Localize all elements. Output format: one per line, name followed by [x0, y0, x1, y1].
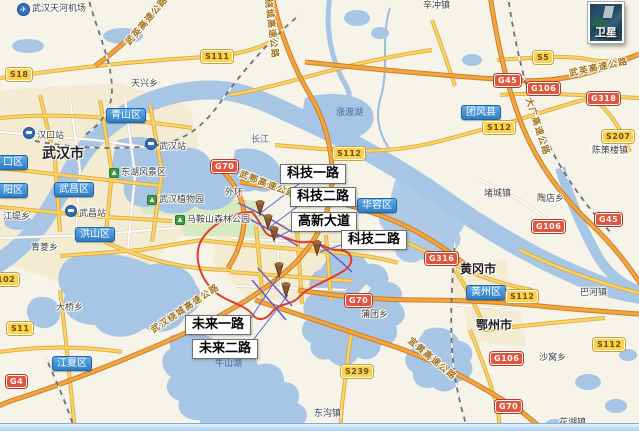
road-shield-provincial: S239 — [341, 365, 373, 378]
park-icon: ▲ — [109, 168, 119, 178]
road-shield-national: G70 — [211, 160, 238, 173]
road-shield-national: G70 — [345, 294, 372, 307]
city-label: 武汉市 — [42, 147, 84, 162]
district-label: 青山区 — [106, 108, 146, 123]
expressway-name-label: 绕城高速公路 — [261, 0, 278, 59]
town-label: 陈策楼镇 — [592, 147, 628, 157]
district-label: 团风县 — [461, 105, 501, 120]
road-shield-provincial: S111 — [201, 50, 233, 63]
poi-label: ▲武汉植物园 — [147, 195, 204, 206]
road-callout-label: 科技一路 — [280, 164, 346, 184]
park-icon: ▲ — [147, 195, 157, 205]
satellite-toggle-button[interactable]: 卫星 — [588, 2, 624, 43]
district-label: 江夏区 — [52, 356, 92, 371]
district-label: 洪山区 — [75, 227, 115, 242]
satellite-toggle-label: 卫星 — [590, 24, 622, 40]
rail-station-label: 武汉站 — [145, 138, 186, 153]
water-label: 长江 — [251, 136, 269, 146]
town-label: 沙窝乡 — [539, 354, 566, 364]
road-shield-provincial: S207 — [602, 130, 634, 143]
town-label: 外环 — [225, 189, 243, 199]
poi-label: ▲东湖风景区 — [109, 168, 166, 179]
town-label: 巴河镇 — [580, 289, 607, 299]
town-label: 大桥乡 — [56, 304, 83, 314]
expressway-name-label: 武英高速公路 — [125, 0, 171, 48]
rail-station-label: 武昌站 — [65, 205, 106, 220]
town-label: 陶店乡 — [537, 195, 564, 205]
town-label: 蒲团乡 — [361, 311, 388, 321]
city-label: 黄冈市 — [460, 263, 496, 276]
water-label: 涨渡湖 — [336, 109, 363, 119]
road-shield-national: G106 — [532, 220, 565, 233]
poi-label: ▲马鞍山森林公园 — [175, 215, 250, 226]
airport-label: ✈武汉天河机场 — [17, 3, 86, 16]
rail-station-icon — [23, 127, 35, 139]
road-callout-label: 未来一路 — [185, 315, 251, 335]
road-shield-national: G45 — [494, 74, 521, 87]
road-shield-provincial: S11 — [7, 322, 33, 335]
district-label: 阳区 — [0, 183, 28, 198]
road-shield-provincial: S18 — [6, 68, 32, 81]
city-label: 鄂州市 — [476, 319, 512, 332]
road-shield-provincial: S112 — [506, 290, 538, 303]
district-label: 武昌区 — [54, 182, 94, 197]
district-label: 黄州区 — [466, 285, 506, 300]
map-labels: 武汉市黄冈市鄂州市青山区武昌区洪山区江夏区团风县华容区黄州区口区阳区天兴乡辛冲镇… — [0, 0, 639, 431]
town-label: 江堤乡 — [3, 213, 30, 223]
road-shield-provincial: S112 — [593, 338, 625, 351]
airport-icon: ✈ — [17, 3, 30, 16]
town-label: 天兴乡 — [131, 80, 158, 90]
expressway-name-label: 宜黄高速公路 — [405, 337, 457, 383]
road-shield-provincial: S112 — [333, 147, 365, 160]
road-shield-national: G106 — [527, 82, 560, 95]
bottom-scrollbar[interactable] — [0, 423, 639, 431]
town-label: 青菱乡 — [31, 244, 58, 254]
map-viewport: 武汉市黄冈市鄂州市青山区武昌区洪山区江夏区团风县华容区黄州区口区阳区天兴乡辛冲镇… — [0, 0, 639, 431]
road-shield-national: G70 — [495, 400, 522, 413]
road-shield-national: G106 — [490, 352, 523, 365]
town-label: 堵城镇 — [484, 190, 511, 200]
road-callout-label: 科技二路 — [290, 187, 356, 207]
road-shield-national: G45 — [595, 213, 622, 226]
district-label: 华容区 — [357, 198, 397, 213]
road-shield-provincial: 102 — [0, 273, 19, 286]
town-label: 东沟镇 — [314, 410, 341, 420]
district-label: 口区 — [0, 155, 28, 170]
town-label: 辛冲镇 — [423, 2, 450, 12]
park-icon: ▲ — [175, 215, 185, 225]
road-callout-label: 高新大道 — [291, 212, 357, 232]
road-callout-label: 未来二路 — [192, 339, 258, 359]
road-shield-national: G318 — [587, 92, 620, 105]
expressway-name-label: 武英高速公路 — [569, 58, 630, 80]
expressway-name-label: 大广高速公路 — [522, 97, 550, 157]
road-shield-provincial: S112 — [483, 121, 515, 134]
rail-station-icon — [145, 138, 157, 150]
road-shield-national: G4 — [6, 375, 27, 388]
rail-station-label: 汉口站 — [23, 127, 64, 142]
rail-station-icon — [65, 205, 77, 217]
road-shield-national: G316 — [425, 252, 458, 265]
water-label: 牛山湖 — [215, 360, 242, 370]
road-callout-label: 科技二路 — [341, 230, 407, 250]
road-shield-provincial: S5 — [533, 51, 553, 64]
